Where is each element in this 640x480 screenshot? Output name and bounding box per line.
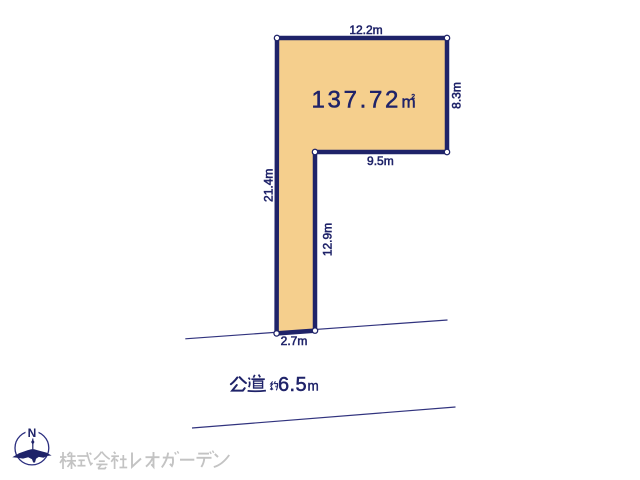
svg-text:21.4m: 21.4m	[262, 169, 276, 202]
svg-text:9.5m: 9.5m	[367, 154, 394, 168]
svg-text:2: 2	[411, 94, 415, 101]
svg-text:12.2m: 12.2m	[349, 23, 382, 37]
svg-text:12.9m: 12.9m	[321, 223, 335, 256]
svg-text:6.5: 6.5	[278, 374, 307, 396]
svg-text:137.72: 137.72	[312, 87, 402, 114]
svg-text:N: N	[28, 426, 37, 440]
svg-text:m: m	[308, 379, 319, 394]
svg-text:8.3m: 8.3m	[450, 82, 464, 109]
svg-text:2.7m: 2.7m	[281, 334, 308, 348]
